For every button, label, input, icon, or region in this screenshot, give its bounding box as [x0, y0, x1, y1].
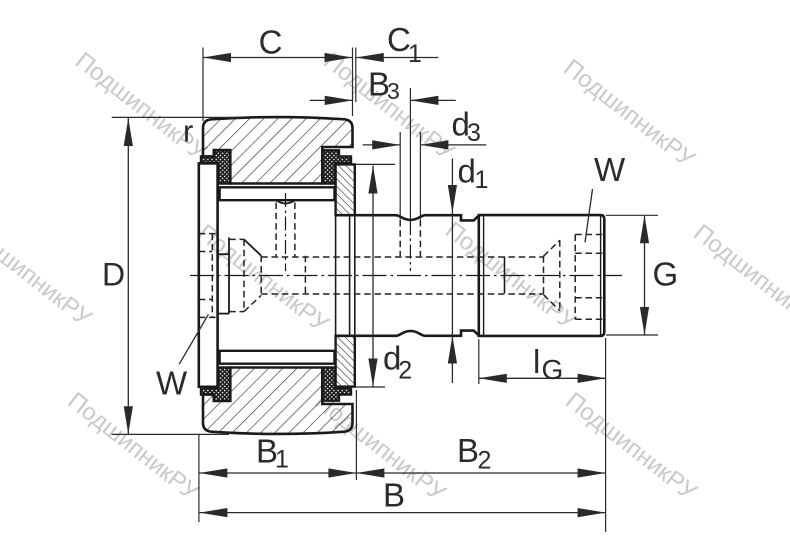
- svg-text:1: 1: [475, 166, 489, 194]
- svg-text:D: D: [102, 257, 125, 293]
- svg-text:l: l: [533, 343, 540, 380]
- svg-text:1: 1: [275, 446, 289, 474]
- svg-text:3: 3: [467, 119, 481, 147]
- svg-text:C: C: [259, 24, 283, 61]
- svg-text:W: W: [156, 365, 188, 402]
- svg-text:2: 2: [478, 447, 492, 475]
- svg-text:G: G: [653, 256, 679, 293]
- svg-text:B: B: [457, 432, 479, 469]
- svg-text:d: d: [458, 153, 476, 190]
- svg-text:G: G: [542, 354, 564, 385]
- svg-text:B: B: [383, 477, 405, 514]
- svg-text:2: 2: [398, 357, 412, 385]
- svg-text:W: W: [594, 151, 626, 188]
- svg-text:1: 1: [408, 40, 422, 68]
- svg-text:r: r: [183, 114, 193, 149]
- svg-text:3: 3: [387, 78, 400, 104]
